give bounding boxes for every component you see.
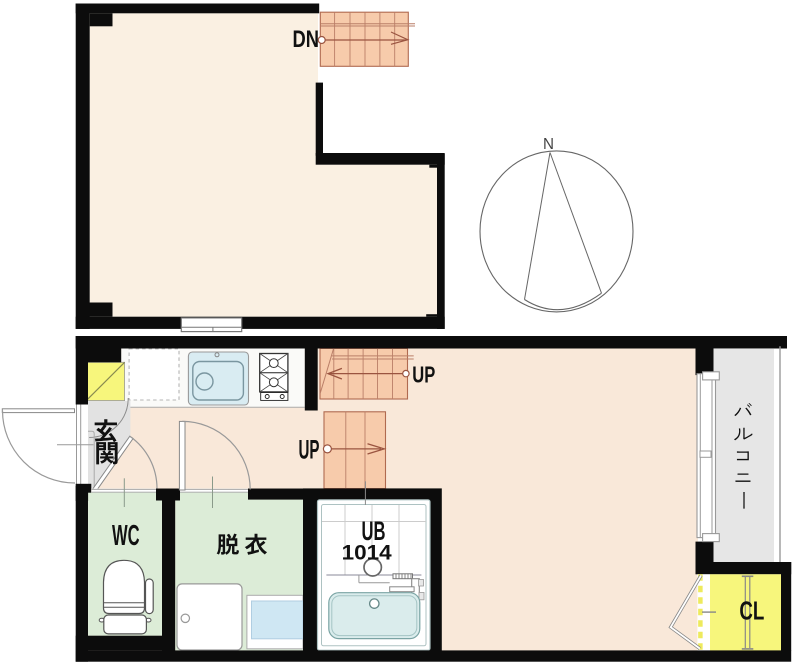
svg-text:UP: UP <box>299 435 320 465</box>
svg-text:WC: WC <box>112 520 140 552</box>
svg-text:N: N <box>543 136 554 153</box>
svg-text:DN: DN <box>293 26 320 53</box>
svg-text:1014: 1014 <box>342 541 392 564</box>
svg-text:UP: UP <box>412 361 435 387</box>
svg-text:CL: CL <box>739 596 764 626</box>
